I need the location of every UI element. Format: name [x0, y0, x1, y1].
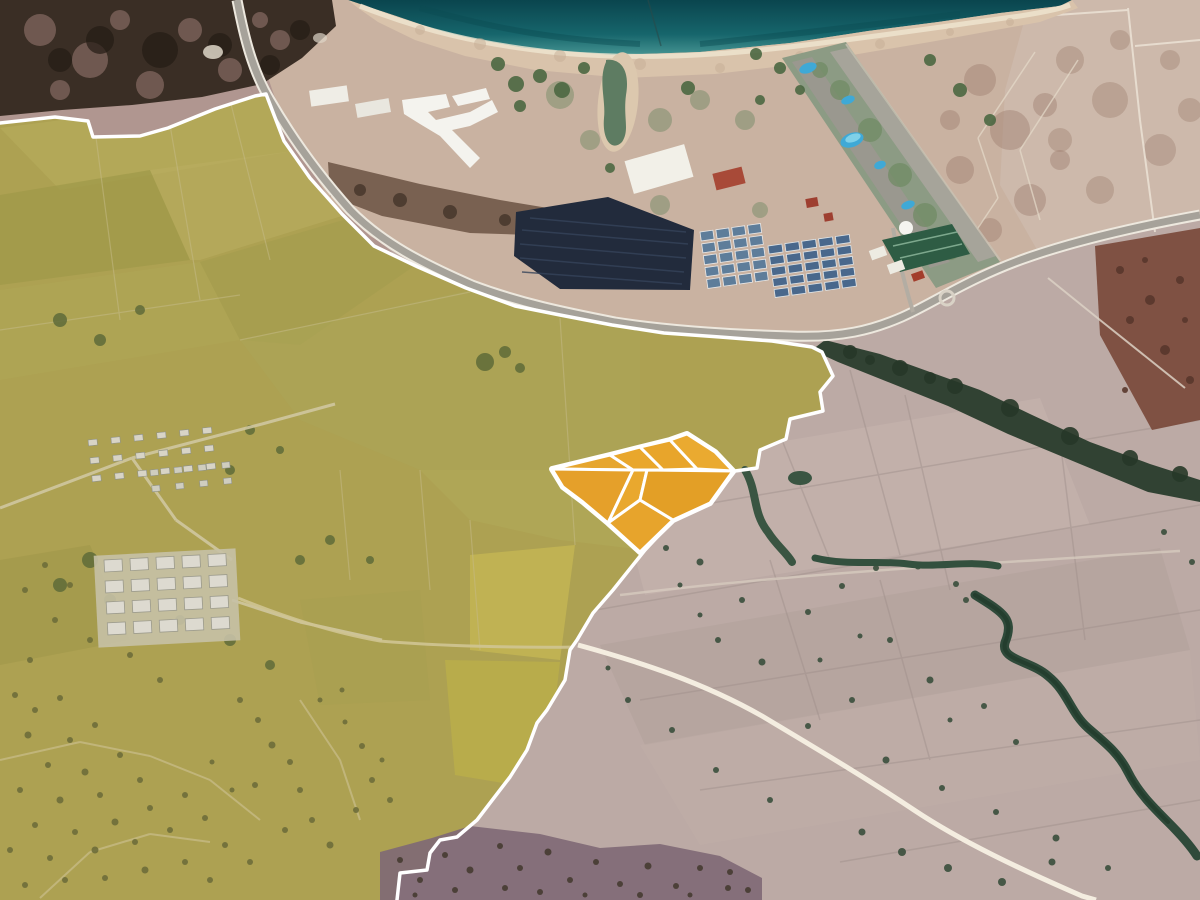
resort-trees — [984, 114, 996, 126]
darkscrub-pink-mottle — [218, 58, 242, 82]
resort-green-patches — [650, 195, 670, 215]
farmland-trees — [1053, 835, 1060, 842]
compound-lawns — [913, 203, 937, 227]
camp-compound-blocks — [158, 598, 177, 611]
village-buildings — [134, 434, 144, 441]
camp-compound-blocks — [157, 577, 176, 590]
purple-scrub-trees — [583, 893, 588, 898]
farmland-trees — [1161, 529, 1167, 535]
farmland-trees — [818, 658, 823, 663]
beach-texture — [415, 25, 425, 35]
zone-orchard-trees — [87, 637, 93, 643]
resort-trees — [774, 62, 786, 74]
forest-band-canopy — [1172, 466, 1188, 482]
solar-array-grid — [822, 259, 837, 269]
zone-orchard-trees — [147, 805, 153, 811]
darkscrub-pink-mottle — [252, 12, 268, 28]
beach-texture — [474, 38, 486, 50]
village-buildings — [157, 432, 167, 439]
farmland-trees — [1105, 865, 1111, 871]
solar-array-grid — [808, 283, 823, 293]
purple-scrub-trees — [688, 893, 693, 898]
village-buildings-2 — [174, 467, 183, 474]
solar-array-grid — [771, 266, 786, 276]
zone-orchard-trees — [359, 743, 365, 749]
zone-orchard-trees — [340, 688, 345, 693]
solar-array-grid — [789, 274, 804, 284]
farmland-trees — [898, 848, 906, 856]
purple-scrub-trees — [517, 865, 523, 871]
zone-dark-clumps — [276, 446, 284, 454]
zone-dark-clumps — [135, 305, 145, 315]
solar-array-grid — [825, 281, 840, 291]
village-buildings — [92, 475, 102, 482]
solar-array-grid — [721, 264, 735, 275]
farmland-trees — [767, 797, 773, 803]
solar-array-grid — [841, 278, 856, 288]
solar-array-grid — [705, 266, 719, 277]
farmland-trees — [759, 659, 766, 666]
purple-scrub-trees — [745, 887, 751, 893]
zone-dark-clumps — [265, 660, 275, 670]
beach-texture — [554, 50, 566, 62]
solar-array-grid — [751, 247, 765, 258]
forest-band-canopy — [843, 345, 857, 359]
solar-array-grid — [768, 244, 783, 254]
resort-scrub-texture — [1050, 150, 1070, 170]
zone-orchard-trees — [252, 782, 258, 788]
zone-orchard-trees — [222, 842, 228, 848]
resort-trees — [953, 83, 967, 97]
solar-array-grid — [719, 252, 733, 263]
darkred-field-bushes — [1116, 266, 1124, 274]
darkred-field-bushes — [1142, 257, 1148, 263]
resort-trees — [578, 62, 590, 74]
zone-orchard-trees — [237, 697, 243, 703]
darkscrub-shadow-blobs — [260, 55, 280, 75]
farmland-trees — [883, 757, 890, 764]
purple-scrub-trees — [697, 865, 703, 871]
solar-array-grid — [788, 263, 803, 273]
solar-array-grid — [774, 288, 789, 298]
resort-green-patches — [580, 130, 600, 150]
zone-orchard-trees — [202, 815, 208, 821]
farmland-trees — [887, 637, 893, 643]
zone-orchard-trees — [343, 720, 348, 725]
resort-scrub-texture — [940, 110, 960, 130]
solar-array-grid — [805, 261, 820, 271]
zone-orchard-trees — [62, 877, 68, 883]
village-buildings — [138, 470, 148, 477]
darkscrub-pink-mottle — [270, 30, 290, 50]
resort-trees — [755, 95, 765, 105]
zone-orchard-trees — [57, 797, 64, 804]
beach-texture — [715, 63, 725, 73]
zone-field-clipped — [300, 590, 430, 705]
topright-mottle — [1144, 134, 1176, 166]
resort-green-patches — [735, 110, 755, 130]
zone-dark-clumps — [53, 578, 67, 592]
zone-orchard-trees — [52, 617, 58, 623]
zone-orchard-trees — [318, 698, 323, 703]
forest-band-canopy — [1122, 450, 1138, 466]
camp-compound-blocks — [183, 576, 202, 589]
zone-orchard-trees — [137, 777, 143, 783]
darkred-field-bushes — [1186, 376, 1194, 384]
zone-orchard-trees — [182, 792, 188, 798]
resort-scrub-texture — [1014, 184, 1046, 216]
resort-green-patches — [648, 108, 672, 132]
farmland-trees — [698, 613, 703, 618]
solar-array-grid — [840, 267, 855, 277]
purple-scrub-trees — [442, 852, 448, 858]
village-buildings-2 — [199, 480, 208, 487]
farmland-trees — [606, 666, 611, 671]
beach-texture — [634, 58, 646, 70]
aerial-zoning-screenshot — [0, 0, 1200, 900]
village-buildings-2 — [150, 469, 159, 476]
solar-array-grid — [837, 245, 852, 255]
darkscrub-shadow-blobs — [86, 26, 114, 54]
village-buildings — [183, 465, 193, 472]
zone-orchard-trees — [282, 827, 288, 833]
solar-array-grid — [753, 259, 767, 270]
camp-compound-blocks — [107, 622, 126, 635]
solar-array-grid — [703, 254, 717, 265]
camp-compound-blocks — [131, 579, 150, 592]
camp-compound-blocks — [156, 556, 175, 569]
resort-green-patches — [752, 202, 768, 218]
resort-scrub-texture — [1033, 93, 1057, 117]
farmland-trees — [678, 583, 683, 588]
camp-compound-blocks — [209, 575, 228, 588]
zone-orchard-trees — [127, 652, 133, 658]
forest-band-canopy — [865, 355, 875, 365]
solar-array-grid — [718, 240, 732, 251]
zone-orchard-trees — [380, 758, 385, 763]
camp-compound-blocks — [104, 559, 123, 572]
zone-orchard-trees — [22, 587, 28, 593]
zone-dark-clumps — [515, 363, 525, 373]
darkred-field-bushes — [1176, 276, 1184, 284]
farmland-trees — [669, 727, 675, 733]
beach-texture — [1006, 18, 1014, 26]
forest-band-canopy — [1061, 427, 1079, 445]
zone-orchard-trees — [309, 817, 315, 823]
resort-trees — [514, 100, 526, 112]
farmland-trees — [944, 864, 952, 872]
village-buildings-2 — [176, 483, 185, 490]
purple-scrub-trees — [502, 885, 508, 891]
farmland-trees — [715, 637, 721, 643]
resort-trees — [508, 76, 524, 92]
zone-orchard-trees — [132, 839, 138, 845]
camp-compound-blocks — [208, 554, 227, 567]
solar-array-grid — [803, 250, 818, 260]
camp-compound-blocks — [105, 580, 124, 593]
camp-compound-blocks — [130, 558, 149, 571]
farmland-trees — [839, 583, 845, 589]
farmland-trees — [849, 697, 855, 703]
zone-orchard-trees — [92, 847, 99, 854]
hedgerow-blob — [788, 471, 812, 485]
darkscrub-shadow-blobs — [142, 32, 178, 68]
hotel-slope-bushes — [354, 184, 366, 196]
resort-trees — [554, 82, 570, 98]
zone-orchard-trees — [167, 827, 173, 833]
zone-orchard-trees — [210, 760, 215, 765]
purple-scrub-trees — [593, 859, 599, 865]
village-buildings — [202, 427, 212, 434]
zone-orchard-trees — [142, 867, 149, 874]
camp-compound-blocks — [211, 617, 230, 630]
topright-mottle — [1056, 46, 1084, 74]
rock-outcrop — [313, 33, 327, 43]
solar-array-grid — [749, 235, 763, 246]
resort-trees — [750, 48, 762, 60]
topright-mottle — [1110, 30, 1130, 50]
hotel-slope-bushes — [393, 193, 407, 207]
zone-orchard-trees — [327, 842, 334, 849]
farmland-trees — [948, 718, 953, 723]
darkscrub-pink-mottle — [110, 10, 130, 30]
zone-orchard-trees — [117, 752, 123, 758]
darkscrub-shadow-blobs — [48, 48, 72, 72]
zone-orchard-trees — [387, 797, 393, 803]
zone-orchard-trees — [42, 562, 48, 568]
darkred-field-bushes — [1182, 317, 1188, 323]
darkscrub-shadow-blobs — [290, 20, 310, 40]
village-buildings-2 — [152, 485, 161, 492]
zone-dark-clumps — [366, 556, 374, 564]
resort-trees — [795, 85, 805, 95]
solar-array-grid — [806, 272, 821, 282]
forest-band-canopy — [1001, 399, 1019, 417]
solar-array-grid — [733, 238, 747, 249]
zone-orchard-trees — [57, 695, 63, 701]
purple-scrub-trees — [617, 881, 623, 887]
village-buildings — [113, 455, 123, 462]
solar-array-grid — [835, 235, 850, 245]
solar-array-grid — [785, 242, 800, 252]
purple-scrub-trees — [727, 869, 733, 875]
purple-scrub-trees — [545, 849, 552, 856]
solar-array-grid — [748, 224, 762, 235]
zone-orchard-trees — [112, 819, 119, 826]
resort-trees — [491, 57, 505, 71]
purple-scrub-trees — [725, 885, 731, 891]
zone-dark-clumps — [295, 555, 305, 565]
topright-mottle — [1086, 176, 1114, 204]
darkred-field-bushes — [1145, 295, 1155, 305]
village-buildings — [88, 439, 98, 446]
zone-dark-clumps — [476, 353, 494, 371]
farmland-trees — [981, 703, 987, 709]
zone-orchard-trees — [269, 742, 276, 749]
purple-scrub-trees — [397, 857, 403, 863]
solar-array-grid — [802, 239, 817, 249]
farmland-trees — [858, 634, 863, 639]
zone-orchard-trees — [247, 859, 253, 865]
zone-field — [300, 590, 430, 705]
darkscrub-pink-mottle — [178, 18, 202, 42]
zone-orchard-trees — [32, 707, 38, 713]
beach-texture — [875, 39, 885, 49]
dome-building — [899, 221, 913, 235]
solar-array-grid — [723, 275, 737, 286]
purple-scrub-trees — [537, 889, 543, 895]
zone-orchard-trees — [297, 787, 303, 793]
farmland-trees — [805, 723, 811, 729]
solar-array-grid — [820, 248, 835, 258]
farmland-trees — [1013, 739, 1019, 745]
zone-orchard-trees — [72, 829, 78, 835]
forest-band-canopy — [892, 360, 908, 376]
farmland-trees — [963, 597, 969, 603]
village-buildings — [204, 445, 214, 452]
zone-orchard-trees — [97, 792, 103, 798]
purple-scrub-trees — [637, 892, 643, 898]
zone-orchard-trees — [287, 759, 293, 765]
darkscrub-pink-mottle — [50, 80, 70, 100]
resort-trees — [681, 81, 695, 95]
village-buildings-2 — [222, 462, 231, 469]
beach-texture — [946, 28, 954, 36]
zone-orchard-trees — [22, 882, 28, 888]
resort-trees — [924, 54, 936, 66]
camp-compound-blocks — [210, 596, 229, 609]
purple-scrub-trees — [417, 877, 423, 883]
zone-dark-clumps — [499, 346, 511, 358]
darkred-field-bushes — [1126, 316, 1134, 324]
zone-orchard-trees — [369, 777, 375, 783]
camp-compound-blocks — [184, 597, 203, 610]
purple-scrub-trees — [413, 893, 418, 898]
zone-orchard-trees — [45, 762, 51, 768]
camp-compound-blocks — [182, 555, 201, 568]
solar-array-grid — [791, 285, 806, 295]
solar-array-grid — [707, 278, 721, 289]
village-buildings — [206, 463, 216, 470]
village-buildings — [160, 468, 170, 475]
village-buildings — [111, 437, 121, 444]
zone-field-bright-clipped — [470, 545, 575, 660]
solar-array-grid — [700, 230, 714, 241]
zone-orchard-trees — [255, 717, 261, 723]
darkscrub-pink-mottle — [24, 14, 56, 46]
solar-array-grid — [738, 273, 752, 284]
zone-orchard-trees — [17, 787, 23, 793]
solar-array-grid — [838, 256, 853, 266]
purple-scrub-trees — [467, 867, 474, 874]
farmland-trees — [953, 581, 959, 587]
rock-outcrop — [203, 45, 223, 59]
solar-array-grid — [754, 271, 768, 282]
zone-dark-clumps — [53, 313, 67, 327]
farmland-trees — [805, 609, 811, 615]
farmland-trees — [663, 545, 669, 551]
zone-dark-clumps — [325, 535, 335, 545]
farmland-trees — [927, 677, 934, 684]
zone-orchard-trees — [157, 677, 163, 683]
camp-compound-blocks — [185, 618, 204, 631]
resort-green-patches — [690, 90, 710, 110]
forest-band-canopy — [947, 378, 963, 394]
farmland-trees — [625, 697, 631, 703]
farmland-trees — [1189, 559, 1195, 565]
zone-field-bright — [470, 545, 575, 660]
zone-orchard-trees — [207, 877, 213, 883]
village-buildings-2 — [223, 478, 232, 485]
darkred-field-bushes — [1160, 345, 1170, 355]
zone-orchard-trees — [47, 855, 53, 861]
topright-mottle — [1048, 128, 1072, 152]
farmland-trees — [998, 878, 1006, 886]
zone-orchard-trees — [12, 692, 18, 698]
resort-trees — [533, 69, 547, 83]
farmland-trees — [939, 785, 945, 791]
darkscrub-pink-mottle — [136, 71, 164, 99]
solar-array-grid — [786, 253, 801, 263]
topright-mottle — [1092, 82, 1128, 118]
village-buildings-2 — [198, 464, 207, 471]
zone-orchard-trees — [25, 732, 32, 739]
farmland-trees — [1049, 859, 1056, 866]
solar-array-grid — [735, 250, 749, 261]
purple-scrub-trees — [673, 883, 679, 889]
village-buildings — [181, 447, 191, 454]
zone-orchard-trees — [27, 657, 33, 663]
solar-array-grid — [702, 242, 716, 253]
farmland-trees — [859, 829, 866, 836]
farmland-trees — [697, 559, 704, 566]
hotel-slope-bushes — [499, 214, 511, 226]
farmland-trees — [739, 597, 745, 603]
resort-scrub-texture — [946, 156, 974, 184]
compound-lawns — [888, 163, 912, 187]
zone-orchard-trees — [230, 788, 235, 793]
zone-orchard-trees — [353, 807, 359, 813]
purple-scrub-trees — [497, 843, 503, 849]
red-roof-building-small — [823, 212, 833, 221]
solar-array-grid — [716, 228, 730, 239]
purple-scrub-trees — [645, 863, 652, 870]
camp-compound-blocks — [106, 601, 125, 614]
camp-compound-blocks — [133, 621, 152, 634]
solar-array-grid — [737, 261, 751, 272]
solar-array-grid — [732, 226, 746, 237]
zone-orchard-trees — [67, 737, 73, 743]
solar-array-grid — [773, 277, 788, 287]
village-buildings — [159, 450, 169, 457]
village-buildings — [136, 452, 146, 459]
zone-orchard-trees — [102, 875, 108, 881]
farmland-trees — [993, 809, 999, 815]
lagoon-pond — [602, 60, 627, 146]
zone-orchard-trees — [7, 847, 13, 853]
resort-scrub-texture — [964, 64, 996, 96]
zone-dark-clumps — [94, 334, 106, 346]
village-buildings — [179, 429, 189, 436]
purple-scrub-trees — [452, 887, 458, 893]
village-buildings — [115, 472, 125, 479]
zone-orchard-trees — [67, 582, 73, 588]
zone-orchard-trees — [82, 769, 89, 776]
solar-array-grid — [823, 270, 838, 280]
zone-orchard-trees — [92, 722, 98, 728]
resort-trees — [605, 163, 615, 173]
solar-array-grid — [770, 255, 785, 265]
